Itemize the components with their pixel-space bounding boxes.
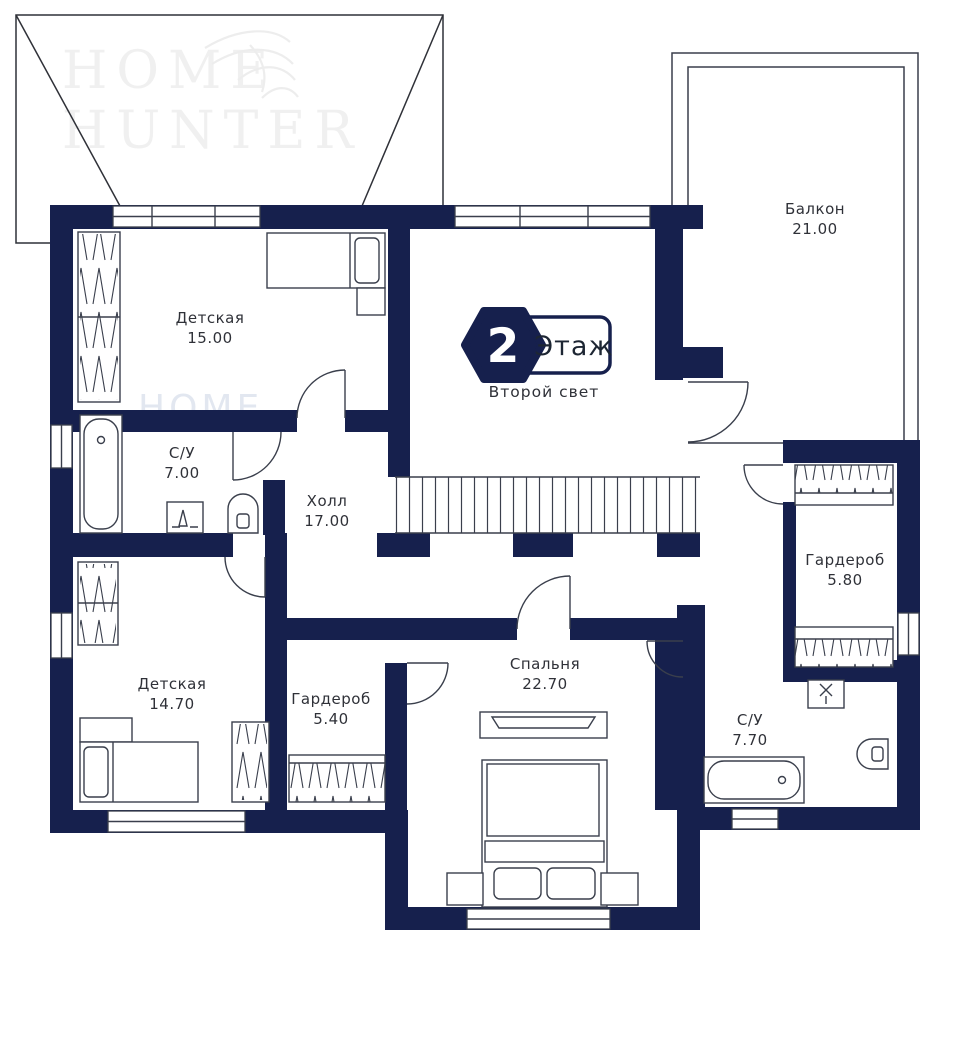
svg-text:7.00: 7.00 [164, 464, 199, 482]
svg-text:Гардероб: Гардероб [291, 690, 370, 708]
svg-text:17.00: 17.00 [304, 512, 349, 530]
room-label-nursery-1: Детская 15.00 [176, 309, 245, 347]
room-label-bathroom-1: С/У 7.00 [164, 444, 199, 482]
bathtub [80, 415, 122, 533]
sink [167, 502, 203, 533]
sink [808, 680, 844, 708]
floor-plan-canvas: HOME HUNTER HOME [0, 0, 966, 1040]
dresser [480, 712, 607, 738]
wardrobe-unit [289, 755, 385, 802]
svg-text:21.00: 21.00 [792, 220, 837, 238]
svg-text:15.00: 15.00 [187, 329, 232, 347]
window [108, 811, 245, 832]
svg-text:Спальня: Спальня [510, 655, 580, 673]
double-bed [447, 760, 638, 907]
window [898, 613, 919, 655]
door-arc [225, 557, 265, 597]
room-label-hall: Холл 17.00 [304, 492, 349, 530]
svg-text:С/У: С/У [169, 444, 195, 462]
room-label-bedroom: Спальня 22.70 [510, 655, 580, 693]
door-arc [517, 576, 570, 629]
svg-text:7.70: 7.70 [732, 731, 767, 749]
wardrobe-unit [232, 722, 269, 802]
svg-text:Детская: Детская [138, 675, 207, 693]
svg-text:Холл: Холл [307, 492, 348, 510]
window [455, 206, 650, 227]
brand-word-2: HUNTER [62, 101, 362, 161]
door-arc [744, 465, 783, 504]
floor-number: 2 [487, 319, 520, 374]
bathtub [704, 757, 804, 803]
single-bed [267, 233, 385, 315]
floor-label: Этаж [534, 331, 613, 362]
wardrobe-unit [78, 232, 120, 402]
toilet [857, 739, 888, 769]
room-label-balcony: Балкон 21.00 [785, 200, 845, 238]
single-bed [80, 718, 198, 802]
room-label-bathroom-2: С/У 7.70 [732, 711, 767, 749]
svg-text:5.40: 5.40 [313, 710, 348, 728]
wardrobe-unit [795, 627, 893, 667]
svg-text:Балкон: Балкон [785, 200, 845, 218]
room-label-wardrobe-2: Гардероб 5.40 [291, 690, 370, 728]
floor-badge: 2 Этаж Второй свет [465, 311, 614, 401]
brand-watermark: HOME HUNTER [62, 31, 362, 161]
wardrobe-unit [795, 465, 893, 505]
wardrobe-unit [78, 562, 118, 645]
window [732, 809, 778, 829]
window [113, 206, 260, 227]
room-labels: Детская 15.00 Балкон 21.00 С/У 7.00 Холл… [138, 200, 885, 749]
floor-plan: HOME HUNTER HOME [0, 0, 966, 1040]
room-label-wardrobe-1: Гардероб 5.80 [805, 551, 884, 589]
svg-text:22.70: 22.70 [522, 675, 567, 693]
svg-text:14.70: 14.70 [149, 695, 194, 713]
window [467, 909, 610, 929]
window [51, 425, 72, 468]
door-arc [407, 663, 448, 704]
svg-text:С/У: С/У [737, 711, 763, 729]
door-arc [688, 382, 748, 442]
door-arc [297, 370, 345, 418]
floor-subtitle: Второй свет [489, 383, 600, 401]
svg-text:Детская: Детская [176, 309, 245, 327]
stair-railing [395, 477, 700, 533]
toilet [228, 494, 258, 533]
svg-text:Гардероб: Гардероб [805, 551, 884, 569]
room-label-nursery-2: Детская 14.70 [138, 675, 207, 713]
door-arc [233, 432, 281, 480]
svg-text:5.80: 5.80 [827, 571, 862, 589]
balcony-outline [672, 53, 918, 443]
window [51, 613, 72, 658]
